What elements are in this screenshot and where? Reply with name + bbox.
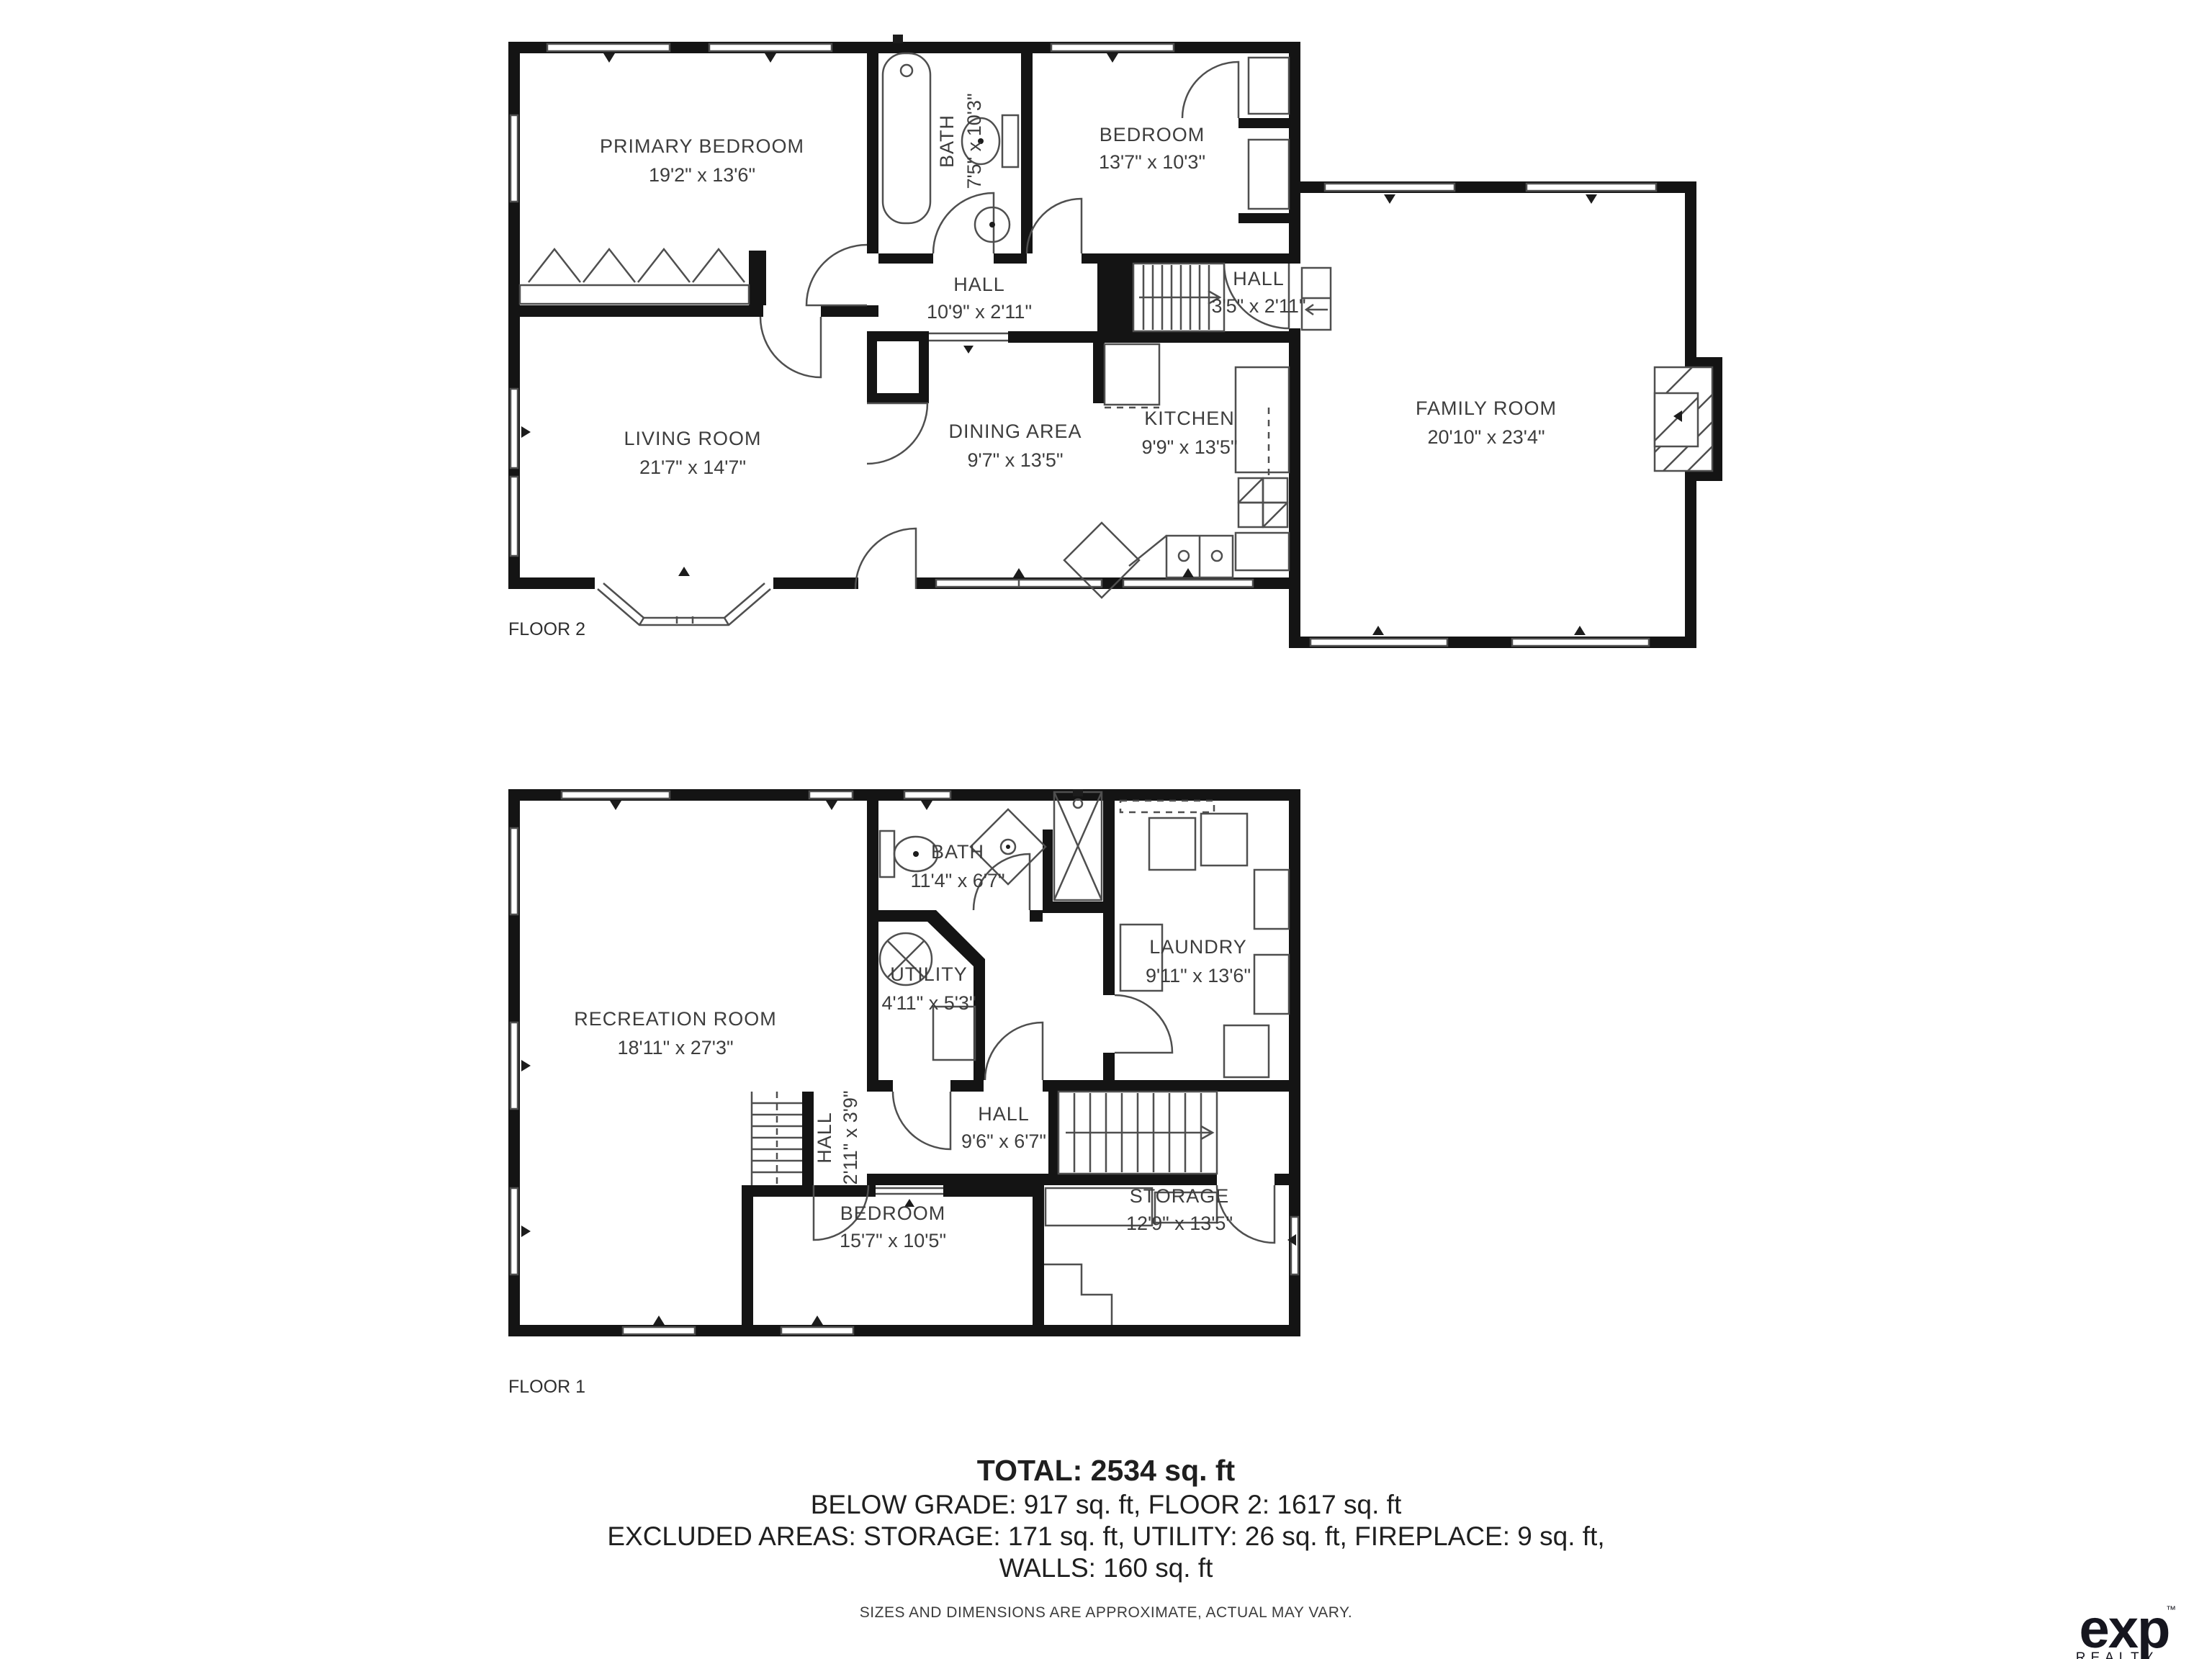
floor1-walls [508, 789, 1300, 1336]
room-dims-bedroom-f2: 13'7" x 10'3" [1099, 151, 1205, 173]
room-dims-hall-f2: 10'9" x 2'11" [927, 301, 1032, 323]
room-dims-storage: 12'9" x 13'5" [1126, 1213, 1233, 1234]
floorplan-canvas: PRIMARY BEDROOM 19'2" x 13'6" BATH 7'5" … [0, 0, 2212, 1659]
floorplan-page: PRIMARY BEDROOM 19'2" x 13'6" BATH 7'5" … [0, 0, 2212, 1659]
summary-total: TOTAL: 2534 sq. ft [977, 1454, 1236, 1487]
room-dims-recreation-room: 18'11" x 27'3" [617, 1037, 733, 1058]
room-dims-kitchen: 9'9" x 13'5" [1141, 436, 1237, 458]
floor2-plan: PRIMARY BEDROOM 19'2" x 13'6" BATH 7'5" … [508, 35, 1722, 648]
room-label-family-room: FAMILY ROOM [1416, 397, 1557, 419]
room-dims-dining-area: 9'7" x 13'5" [967, 449, 1063, 471]
room-dims-family-room: 20'10" x 23'4" [1427, 426, 1545, 448]
room-label-laundry: LAUNDRY [1149, 936, 1247, 958]
summary-walls: WALLS: 160 sq. ft [999, 1553, 1214, 1583]
room-dims-hall2-f2: 3'5" x 2'11" [1211, 295, 1305, 317]
room-label-hall2-f2: HALL [1233, 268, 1285, 289]
summary-below-grade: BELOW GRADE: 917 sq. ft, FLOOR 2: 1617 s… [811, 1490, 1402, 1519]
room-dims-bath-f2: 7'5" x 10'3" [963, 93, 985, 189]
room-dims-bath-f1: 11'4" x 6'7" [910, 870, 1004, 891]
floor2-windows [511, 44, 1656, 646]
summary-excluded-areas: EXCLUDED AREAS: STORAGE: 171 sq. ft, UTI… [607, 1521, 1604, 1551]
room-label-bath-f2: BATH [936, 114, 958, 168]
room-label-recreation-room: RECREATION ROOM [574, 1008, 777, 1030]
exp-realty-logo: exp ™ REALTY [2076, 1599, 2176, 1659]
summary-block: TOTAL: 2534 sq. ft BELOW GRADE: 917 sq. … [607, 1454, 1604, 1621]
floor1-windows [511, 791, 1298, 1334]
room-label-primary-bedroom: PRIMARY BEDROOM [600, 135, 804, 157]
room-label-hall2-f1: HALL [814, 1112, 835, 1164]
room-dims-hall-f1: 9'6" x 6'7" [961, 1130, 1046, 1152]
room-label-bedroom-f1: BEDROOM [840, 1202, 946, 1224]
room-dims-living-room: 21'7" x 14'7" [639, 457, 746, 478]
room-label-storage: STORAGE [1130, 1185, 1230, 1207]
floor2-labels: PRIMARY BEDROOM 19'2" x 13'6" BATH 7'5" … [508, 93, 1557, 639]
floor1-label: FLOOR 1 [508, 1377, 585, 1397]
room-label-dining-area: DINING AREA [948, 421, 1082, 442]
room-label-utility: UTILITY [890, 963, 968, 985]
floor2-label: FLOOR 2 [508, 619, 585, 639]
logo-trademark: ™ [2166, 1604, 2176, 1615]
room-dims-hall2-f1: 2'11" x 3'9" [840, 1090, 861, 1184]
room-label-bath-f1: BATH [931, 841, 984, 863]
floor1-plan: RECREATION ROOM 18'11" x 27'3" BATH 11'4… [508, 789, 1300, 1397]
room-label-hall-f1: HALL [978, 1103, 1030, 1125]
room-dims-laundry: 9'11" x 13'6" [1146, 965, 1251, 986]
room-label-living-room: LIVING ROOM [624, 428, 761, 449]
summary-disclaimer: SIZES AND DIMENSIONS ARE APPROXIMATE, AC… [860, 1604, 1352, 1621]
room-dims-primary-bedroom: 19'2" x 13'6" [649, 164, 755, 186]
room-label-hall-f2: HALL [953, 274, 1005, 295]
room-dims-bedroom-f1: 15'7" x 10'5" [840, 1230, 946, 1251]
logo-realty-text: REALTY [2076, 1650, 2159, 1659]
room-label-bedroom-f2: BEDROOM [1100, 124, 1205, 145]
room-dims-utility: 4'11" x 5'3" [881, 992, 976, 1014]
room-label-kitchen: KITCHEN [1144, 408, 1235, 429]
